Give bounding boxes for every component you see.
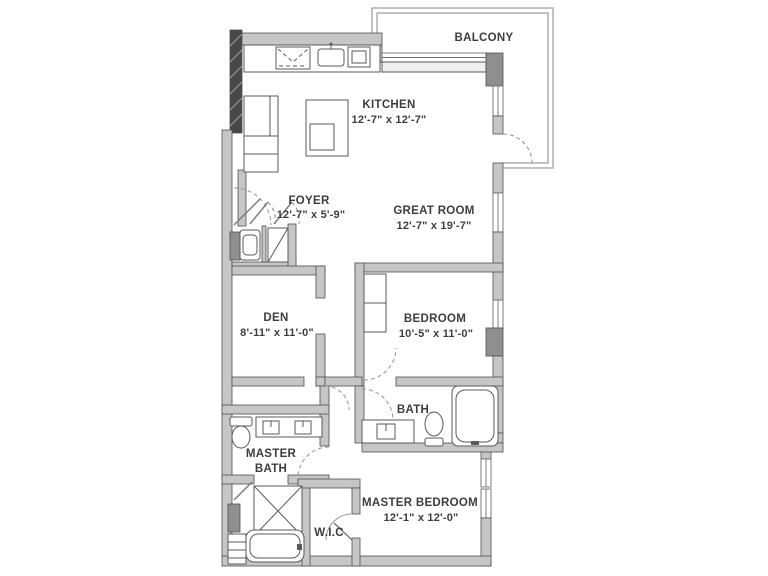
floor-plan-page: BALCONY KITCHEN 12'-7" x 12'-7" FOYER 12…: [0, 0, 768, 576]
right-wall-seg2: [493, 163, 503, 193]
bedroom-dims: 10'-5" x 11'-0": [399, 328, 473, 340]
bedroom-closet: [364, 274, 386, 332]
island-sink: [310, 124, 334, 150]
kitchen-dims: 12'-7" x 12'-7": [352, 114, 427, 126]
bath-north-wall-west: [325, 377, 362, 386]
master-bedroom-label: MASTER BEDROOM: [362, 497, 478, 509]
bedroom-north-wall: [355, 263, 503, 272]
plumbing-chase: [228, 504, 240, 532]
kitchen-sink-icon: [318, 49, 344, 66]
master-bath-label-line1: MASTER: [246, 448, 297, 460]
den-south-wall: [232, 377, 304, 386]
den-south-stub: [316, 377, 325, 386]
kitchen-north-wall: [242, 33, 382, 45]
master-bedroom-dims: 12'-1" x 12'-0": [384, 512, 459, 524]
kitchen-label: KITCHEN: [362, 99, 415, 111]
bath-label: BATH: [397, 404, 429, 416]
wic-north-wall: [298, 479, 360, 488]
west-wall: [222, 130, 232, 556]
great-room-label: GREAT ROOM: [393, 205, 474, 217]
right-wall-seg1: [493, 116, 503, 134]
ne-column: [486, 53, 503, 86]
foyer-label: FOYER: [288, 195, 330, 207]
great-room-dims: 12'-7" x 19'-7": [397, 220, 472, 232]
master-tub-faucet: [297, 544, 302, 550]
foyer-dims: 12'-7" x 5'-9": [277, 209, 346, 221]
cooktop-inner: [352, 51, 366, 63]
bath-north-wall-east: [396, 377, 503, 386]
balcony-label: BALCONY: [455, 32, 514, 44]
den-north-wall: [232, 266, 325, 275]
bathtub-faucet: [471, 441, 479, 445]
party-wall: [230, 30, 242, 133]
den-east-wall-upper: [316, 266, 325, 298]
mb-toilet-tank: [230, 417, 252, 426]
den-label: DEN: [263, 312, 288, 324]
wic-east-wall-lower: [352, 538, 360, 566]
master-bath-label-line2: BATH: [255, 463, 287, 475]
bathtub-inner: [456, 390, 494, 442]
wic-east-wall-upper: [352, 488, 360, 514]
bath-toilet-tank: [425, 438, 443, 446]
floor-plan-drawing: BALCONY KITCHEN 12'-7" x 12'-7" FOYER 12…: [0, 0, 768, 576]
washer-drum: [243, 235, 257, 255]
master-tub-inner: [250, 534, 300, 558]
kitchen-counter-east: [382, 62, 486, 72]
utility-divider: [262, 226, 266, 262]
utility-east-wall: [288, 224, 296, 270]
mb-toilet-icon: [232, 426, 250, 448]
utility-chase: [230, 232, 240, 260]
bedroom-west-wall: [355, 263, 364, 386]
master-bath-south-west: [222, 475, 254, 484]
wic-label: W.I.C: [314, 527, 344, 539]
den-dims: 8'-11" x 11'-0": [240, 327, 314, 339]
bedroom-label: BEDROOM: [404, 313, 466, 325]
fridge-icon: [244, 96, 278, 136]
balcony-door-arc: [503, 134, 532, 163]
linen-shelves: [228, 534, 246, 564]
se-column: [486, 328, 503, 356]
master-bath-north-wall: [222, 405, 329, 414]
